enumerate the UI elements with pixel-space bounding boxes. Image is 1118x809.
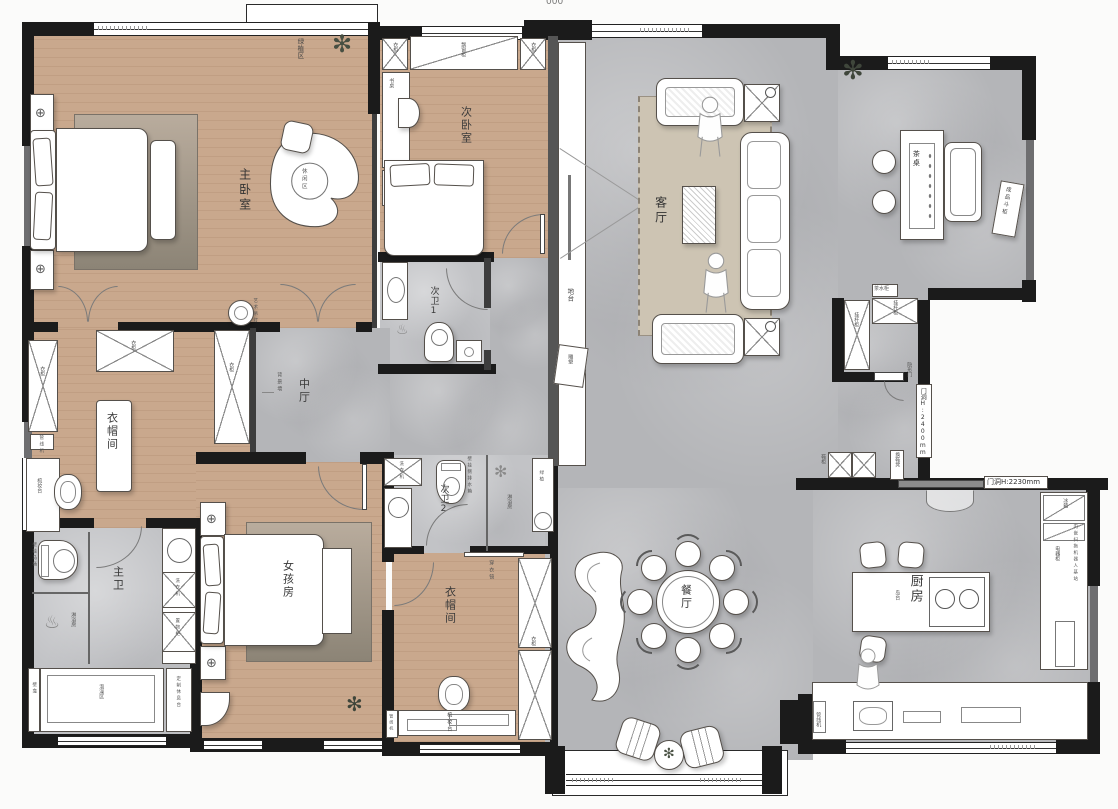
- entry-door-arc: [926, 490, 974, 512]
- dressing-table: [398, 710, 516, 736]
- bath1-vanity: [382, 262, 408, 320]
- wall-top-jog: [826, 24, 840, 70]
- shower-head-icon: ✻: [494, 462, 507, 481]
- burner: [935, 589, 955, 609]
- curtain-hatch-2: [640, 28, 690, 32]
- bay-window-frame: [246, 4, 378, 24]
- plant-icon: ✻: [332, 30, 352, 58]
- platform-shelf-line: [568, 175, 571, 260]
- side-table: [744, 84, 780, 122]
- curtain-hatch-5: [572, 778, 616, 782]
- green-plant-label: 绿植: [538, 470, 543, 483]
- bed-foot-bench: [322, 548, 352, 634]
- window-girls-2: [324, 740, 382, 750]
- sink-basin: [167, 538, 192, 563]
- window-girls-1: [204, 740, 262, 750]
- master-bed: [56, 128, 148, 252]
- bath1-cabinet: [456, 340, 482, 362]
- pillow: [32, 137, 53, 186]
- wall-kitchen-bottom-1: [1056, 740, 1100, 754]
- side-table-round: ✻: [654, 740, 684, 770]
- desk-label: 书桌: [388, 78, 393, 88]
- closet1-label: 衣帽间: [106, 412, 118, 451]
- soaking-area: [40, 668, 164, 732]
- stool-seat: [445, 684, 463, 705]
- fridge-label: 冰箱: [1062, 498, 1067, 508]
- table-item: [449, 714, 509, 726]
- toilet-seat: [53, 549, 75, 573]
- window-master-bath: [58, 736, 166, 746]
- master-bedroom-label: 主卧室: [238, 168, 251, 213]
- hidden-door-leaf: [874, 372, 904, 381]
- pillow: [389, 163, 430, 187]
- tea-table-label: 茶桌: [912, 150, 919, 168]
- plant-icon: ✻: [663, 746, 675, 762]
- floor-mid-hall: [256, 328, 390, 462]
- hanging-rod-cabinet: [844, 300, 870, 370]
- platform-strip: [558, 42, 586, 466]
- sofa-main: [740, 132, 790, 310]
- door-height-2400-label: 门洞H:2400mm: [919, 388, 925, 456]
- platform-label: 地台: [566, 288, 573, 302]
- nightstand: ⊕: [200, 502, 226, 536]
- shower-steam-icon: ♨: [44, 612, 60, 633]
- pillow: [33, 192, 53, 241]
- chair-back: [672, 534, 704, 566]
- island-counter-label: 岛台: [894, 590, 899, 600]
- shower-partition-v: [88, 532, 90, 664]
- wall-passage-1: [918, 300, 930, 384]
- leisure-area-label: 休闲区: [300, 168, 306, 191]
- sculpture-label: 雕塑: [567, 354, 572, 364]
- floor-drain: [534, 512, 552, 530]
- pillow: [203, 591, 222, 634]
- window-master-bay: [254, 22, 378, 36]
- curtain-hatch-6: [700, 778, 744, 782]
- nightstand: ⊕: [30, 94, 54, 134]
- appliance: [1043, 523, 1085, 541]
- sink-basin: [387, 277, 405, 303]
- wall-top-4: [702, 24, 834, 38]
- shower-room-label: 淋浴房: [506, 494, 511, 509]
- desk-chair: [398, 98, 420, 128]
- dressing-mirror-label: 穿衣镜: [488, 560, 493, 581]
- wardrobe-label: 衣柜: [228, 362, 233, 372]
- vanity-stool: [54, 474, 82, 510]
- shoe-cabinet: [852, 452, 876, 478]
- dressing-table-label: 梳妆台: [36, 478, 41, 493]
- counter-item: [903, 711, 941, 723]
- hanging-rod-cabinet-label: 挂杆柜: [853, 312, 858, 327]
- sculpture-stand: [553, 344, 588, 388]
- top-dimension-mark: 000: [546, 0, 563, 7]
- cistern: [441, 463, 461, 471]
- ceiling-symbol-icon: ⊕: [206, 656, 217, 671]
- wall-hall-closet-left: [832, 298, 844, 382]
- shoe-bench-label: 换鞋凳: [894, 452, 899, 467]
- feature-wall-tick: [262, 392, 274, 393]
- curtain-hatch-4: [990, 745, 1038, 749]
- counter-item: [961, 707, 1021, 723]
- art-pendant-lamp: [228, 300, 254, 326]
- lounge-chair: [262, 126, 368, 232]
- wall-kitchen-step: [798, 694, 812, 744]
- wardrobe-label: 衣柜: [130, 340, 135, 350]
- wall-right-1: [1022, 56, 1036, 140]
- wall-kitchen-right-gray: [1090, 586, 1098, 682]
- shower-room-label: 淋浴房: [70, 612, 75, 627]
- wall-master-bottom-3: [356, 322, 372, 332]
- wall-right-gray: [1026, 140, 1034, 280]
- vanity-stool: [438, 676, 470, 712]
- shower-partition-h: [32, 592, 90, 594]
- wall-closet1-hall: [250, 328, 256, 458]
- floor-side-corridor: [490, 258, 552, 370]
- feature-wall-label: 背景墙: [276, 372, 281, 393]
- person-figure: [694, 248, 738, 320]
- sofa-cushion: [747, 141, 781, 189]
- wall-hung-toilet-label: 壁挂马桶: [31, 542, 36, 568]
- drain: [464, 347, 474, 357]
- wardrobe-cabinet: [518, 558, 552, 648]
- wardrobe-cabinet: [28, 340, 58, 432]
- wall-bath1-bottom: [378, 364, 496, 374]
- kitchen-label: 厨房: [908, 574, 922, 604]
- floor-mid-corridor: [390, 370, 552, 455]
- washer-label: 洗衣机: [398, 461, 403, 481]
- wardrobe-island: [96, 330, 174, 372]
- shoe-cabinet-label: 鞋柜: [820, 454, 825, 464]
- wardrobe-cabinet: [518, 650, 552, 740]
- entry-door-leaf: [898, 480, 984, 488]
- wall-master-second-2: [372, 114, 377, 328]
- robot-dock-label: 内嵌扫拖机器人基站: [1072, 524, 1077, 583]
- sofa-cushion: [747, 195, 781, 243]
- sofa-bottom: [652, 314, 744, 364]
- cistern: [41, 545, 49, 577]
- plant-icon: ✻: [842, 56, 864, 86]
- lamp-icon: [765, 321, 776, 332]
- custom-rest-counter-label: 定制休息台: [175, 676, 180, 709]
- dining-room-label: 餐厅: [680, 584, 692, 610]
- burner: [959, 589, 979, 609]
- curtain-hatch-3: [892, 60, 932, 64]
- curtain-hatch-1: [98, 26, 150, 30]
- art-pendant-label: 艺术吊灯: [252, 298, 257, 324]
- counter-item: [1055, 621, 1075, 667]
- ceiling-symbol-icon: ⊕: [206, 512, 217, 527]
- soaking-area-label: 泡澡区: [98, 684, 103, 699]
- shoe-cabinet: [828, 452, 852, 478]
- side-table: [744, 318, 780, 356]
- wall-top-tee: [524, 20, 592, 40]
- girls-bed: [224, 534, 324, 646]
- pillow: [203, 543, 222, 586]
- sink-basin: [388, 497, 409, 518]
- stool-seat: [60, 481, 76, 503]
- pendant-inner: [234, 306, 248, 320]
- tea-table: [900, 130, 944, 240]
- wall-right-horizontal: [928, 288, 1036, 300]
- nightstand: ⊕: [200, 646, 226, 680]
- water-dispenser-label: 管线机: [815, 712, 820, 727]
- wall-master-bath-top-2: [146, 518, 196, 528]
- master-bed-bench: [150, 140, 176, 240]
- second-bedroom-door-leaf: [540, 214, 545, 254]
- bath2-vanity: [384, 488, 412, 548]
- wall-master-second-1: [368, 22, 380, 114]
- tea-cabinet-label: 茶水柜: [874, 287, 889, 292]
- toilet-seat: [431, 329, 448, 346]
- wall-balcony-right: [762, 746, 782, 794]
- wall-platform: [548, 36, 558, 466]
- living-room-label: 客厅: [654, 196, 667, 226]
- mid-hall-label: 中厅: [298, 378, 310, 404]
- dressing-table-label: 梳妆台: [446, 712, 451, 733]
- shower-partition: [486, 455, 488, 551]
- floor-plan: 000 门洞H:2400mm 门洞H:2230mm: [0, 0, 1118, 809]
- nightstand: ⊕: [30, 250, 54, 290]
- person-figure: [688, 92, 732, 164]
- soaking-tub: [47, 675, 155, 723]
- ceiling-symbol-icon: ⊕: [35, 262, 46, 277]
- girls-door-leaf: [362, 464, 367, 510]
- washer-label: 洗衣机: [174, 578, 179, 598]
- wardrobe-label: 衣柜: [392, 42, 397, 52]
- chair-back: [620, 586, 652, 618]
- appliance-cabinet-label: 电器柜: [1054, 546, 1059, 561]
- hidden-door-label: 隐形门: [906, 362, 911, 377]
- green-plant-area-label: 绿植区: [296, 38, 303, 59]
- wall-master-bottom-1: [34, 322, 58, 332]
- niche: [28, 668, 40, 732]
- sofa-cushion: [661, 323, 735, 355]
- ceiling-symbol-icon: ⊕: [35, 106, 46, 121]
- bath1-label: 次卫1: [428, 286, 437, 317]
- girls-room-label: 女孩房: [282, 560, 294, 599]
- water-dispenser-label: 管线机: [389, 714, 393, 732]
- wall-bath1-right-2: [484, 350, 491, 370]
- chair-back: [726, 586, 758, 618]
- kitchen-tall-counter: [1040, 492, 1088, 670]
- island-chair: [897, 541, 925, 569]
- wall-kitchen-right-1: [1086, 490, 1100, 586]
- shower-steam-icon: ♨: [396, 322, 409, 338]
- wardrobe-label: 衣柜: [530, 636, 535, 646]
- person-figure: [848, 646, 888, 708]
- island-chair: [859, 541, 888, 570]
- wardrobe-cabinet: [214, 330, 250, 444]
- bath2-label: 次卫2: [438, 484, 447, 515]
- curvy-lounge-bench: [552, 548, 632, 708]
- tea-bench-seat: [950, 148, 976, 216]
- storage-cabinet-label: 置物柜: [174, 618, 179, 638]
- sink-basin: [859, 707, 887, 725]
- niche-label: 壁龛: [31, 682, 36, 695]
- wall-hung-cistern-label: 壁挂侧排水箱: [466, 456, 471, 495]
- window-closet2: [420, 744, 520, 754]
- bay-window-cabinet-label: 飘窗柜: [460, 42, 465, 57]
- dressing-mirror: [464, 552, 524, 557]
- wall-hung-toilet: [38, 540, 78, 580]
- master-bath-label: 主卫: [112, 566, 124, 592]
- wall-dining-right-corner: [780, 700, 800, 744]
- pillow: [434, 163, 475, 186]
- second-bedroom-label: 次卧室: [460, 106, 472, 145]
- door-height-2230-label: 门洞H:2230mm: [987, 479, 1040, 486]
- tea-stool: [872, 150, 896, 174]
- plant-icon: ✻: [346, 692, 363, 716]
- wardrobe-label: 衣柜: [530, 42, 535, 52]
- hanging-rod-cabinet-label: 挂杆柜: [892, 300, 897, 315]
- tea-bench: [944, 142, 982, 222]
- tea-stool: [872, 190, 896, 214]
- chair-back: [672, 638, 704, 670]
- coffee-table: [682, 186, 716, 244]
- sofa-cushion: [747, 249, 781, 297]
- toilet: [424, 322, 454, 362]
- closet2-label: 衣帽间: [444, 586, 456, 625]
- wardrobe-label: 衣柜: [39, 366, 44, 376]
- water-dispenser-label: 管线机: [38, 435, 43, 455]
- lamp-icon: [765, 87, 776, 98]
- wall-girls-top-1: [196, 452, 306, 464]
- tea-set-dots: [927, 151, 933, 221]
